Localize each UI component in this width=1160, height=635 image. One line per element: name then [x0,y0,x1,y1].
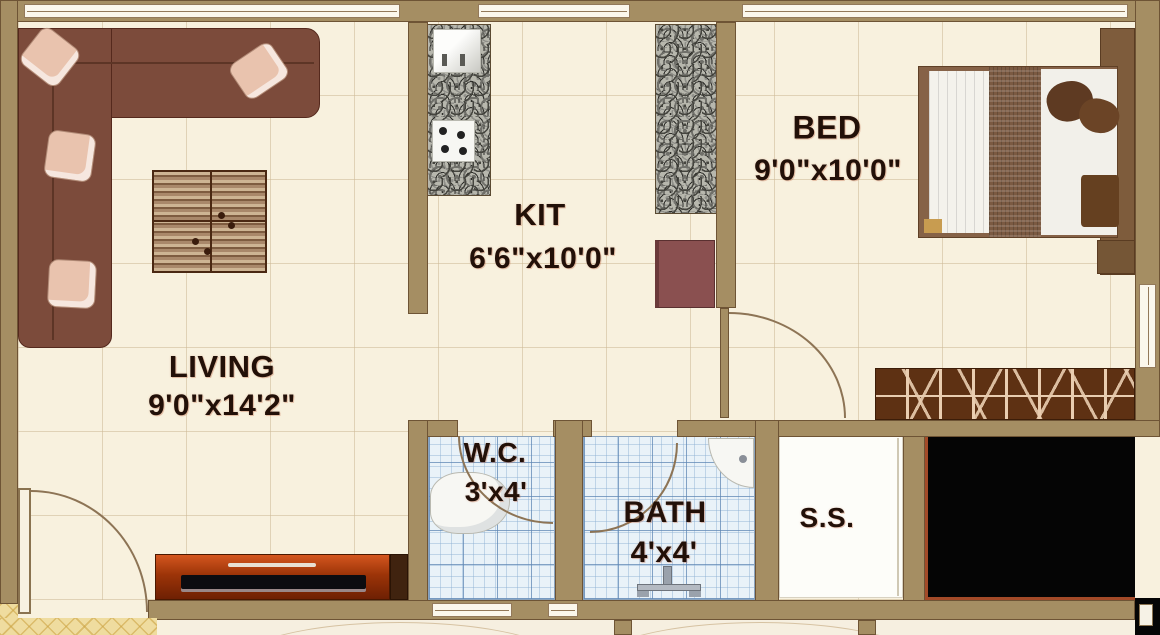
void-area [925,436,1135,600]
tv-shelf-highlight [228,563,316,567]
bed-corner-block [924,219,942,233]
wall-wc-left [408,420,428,620]
door-frame-symbol [1139,604,1153,626]
bed-duvet [929,71,989,233]
neighbor-wall-stub [858,620,876,635]
bedroom-label: BED [792,110,861,147]
service-slab-rail-line [897,438,899,596]
kitchen-window [478,4,630,18]
living-window [24,4,400,18]
kitchen-label: KIT [514,197,565,233]
table-decor-dot [192,238,199,245]
bed-cushion [1081,175,1119,227]
wall-wc-bath [555,420,583,620]
sofa-pillow [47,259,97,309]
wall-south-of-bedroom [677,420,1160,437]
neighbor-flat-strip [170,620,1135,635]
bedroom-dims: 9'0"x10'0" [754,154,902,188]
kitchen-hob [432,120,475,162]
wc-dims: 3'x4' [465,476,528,508]
bath-ventilator [548,603,578,617]
neighbor-door-arc [230,622,570,635]
bedroom-window [742,4,1128,18]
table-decor-dot [204,248,211,255]
tv-cabinet [155,554,390,600]
floor-plan: LIVING 9'0"x14'2" KIT 6'6"x10'0" BED 9'0… [0,0,1160,635]
refrigerator [655,240,715,308]
table-decor-dot [218,212,225,219]
bedroom-side-window [1139,284,1156,368]
wardrobe [875,368,1135,420]
neighbor-wall-stub [614,620,632,635]
kitchen-sink [433,29,481,73]
entrance-landing-tiles [0,618,157,635]
wall-bottom [148,600,1135,620]
bath-tap [637,566,701,598]
living-room-label: LIVING [169,349,275,385]
service-slab-label: S.S. [800,502,855,534]
wall-left [0,0,18,604]
bed-blanket [989,67,1041,237]
kitchen-counter-right [655,24,717,214]
wall-bath-ss [755,420,779,620]
bedroom-door-leaf [720,308,729,418]
tv-cabinet-end [390,554,408,600]
coffee-table [152,170,267,273]
bed [918,66,1118,238]
wc-label: W.C. [464,437,527,469]
bath-dims: 4'x4' [631,536,698,570]
wall-ss-void [903,436,925,620]
neighbor-door-arc [590,622,930,635]
entrance-door-leaf [18,488,31,614]
wc-ventilator [432,603,512,617]
bath-label: BATH [623,496,706,530]
kitchen-dims: 6'6"x10'0" [469,242,617,276]
sofa-pillow [43,129,97,183]
tv-screen [181,575,366,589]
wall-kitchen-bedroom [716,22,736,308]
table-decor-dot [228,222,235,229]
living-room-dims: 9'0"x14'2" [148,389,296,423]
wall-living-kitchen [408,22,428,314]
bedside-block [1097,240,1135,274]
